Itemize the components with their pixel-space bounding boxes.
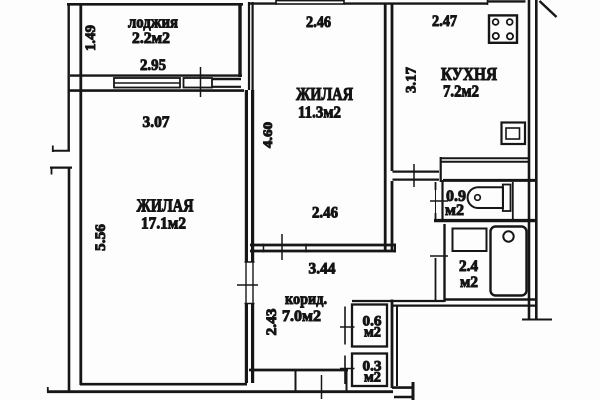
svg-text:2.43: 2.43 (264, 309, 280, 336)
svg-text:5.56: 5.56 (93, 223, 109, 251)
svg-text:2.47: 2.47 (432, 13, 457, 30)
svg-text:3.17: 3.17 (404, 67, 420, 93)
svg-text:ЖИЛАЯ: ЖИЛАЯ (296, 84, 353, 104)
svg-text:м2: м2 (460, 274, 478, 291)
svg-text:7.2м2: 7.2м2 (443, 82, 479, 101)
svg-text:ЖИЛАЯ: ЖИЛАЯ (137, 196, 194, 216)
svg-text:м2: м2 (364, 325, 381, 341)
svg-text:корид.: корид. (285, 291, 327, 308)
svg-text:м2: м2 (445, 202, 464, 219)
svg-text:11.3м2: 11.3м2 (298, 103, 341, 122)
svg-text:м2: м2 (364, 370, 381, 386)
svg-text:17.1м2: 17.1м2 (141, 214, 186, 233)
svg-text:2.46: 2.46 (306, 14, 331, 31)
svg-text:2.46: 2.46 (312, 205, 338, 222)
svg-text:3.44: 3.44 (309, 261, 336, 278)
svg-text:2.4: 2.4 (459, 258, 478, 275)
svg-text:2.2м2: 2.2м2 (132, 30, 170, 47)
svg-text:3.07: 3.07 (143, 114, 170, 131)
svg-text:1.49: 1.49 (83, 25, 99, 51)
svg-text:лоджия: лоджия (128, 13, 178, 32)
svg-text:4.60: 4.60 (260, 122, 275, 148)
svg-text:7.0м2: 7.0м2 (282, 308, 321, 325)
svg-text:2.95: 2.95 (140, 57, 166, 74)
